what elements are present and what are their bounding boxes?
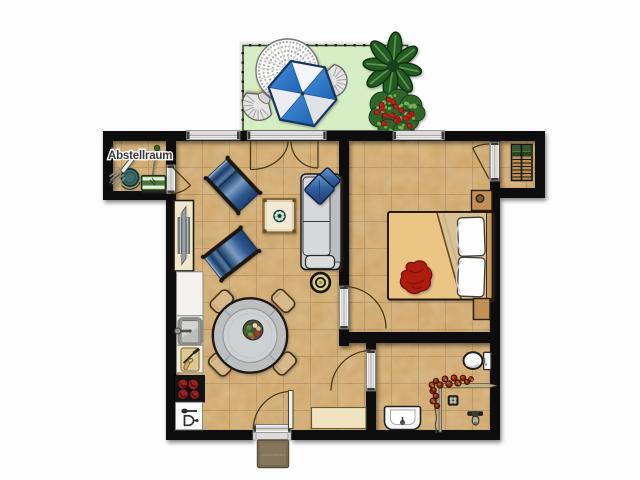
svg-text:Abstellraum: Abstellraum bbox=[108, 150, 172, 162]
svg-text:willkommen: willkommen bbox=[261, 452, 285, 457]
